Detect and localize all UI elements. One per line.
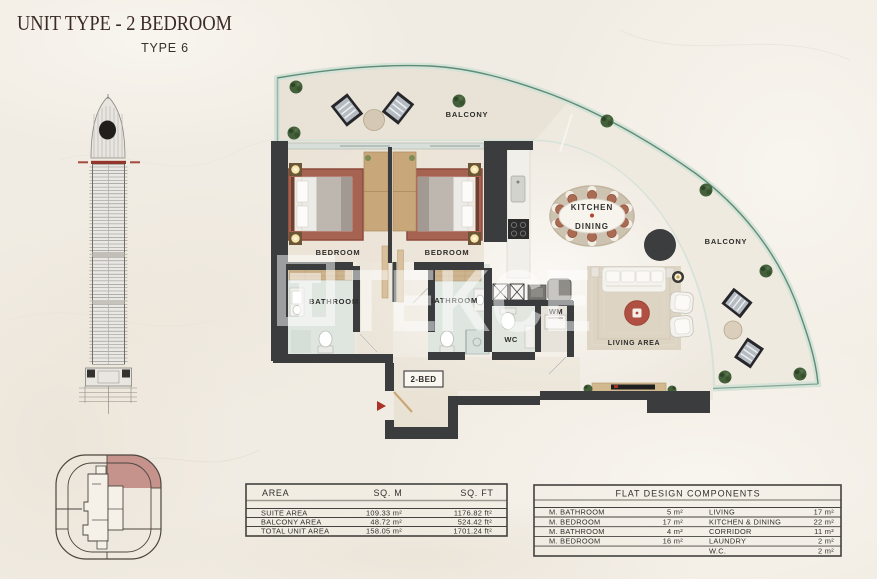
svg-text:2-BED: 2-BED xyxy=(410,375,436,384)
svg-text:TOTAL UNIT AREA: TOTAL UNIT AREA xyxy=(261,527,329,536)
svg-text:2 m²: 2 m² xyxy=(818,537,834,546)
svg-text:1701.24 ft²: 1701.24 ft² xyxy=(453,527,492,536)
svg-text:M. BATHROOM: M. BATHROOM xyxy=(549,527,605,536)
svg-text:W.C.: W.C. xyxy=(709,546,726,555)
svg-text:TEKCE: TEKCE xyxy=(344,251,592,350)
svg-text:17 m²: 17 m² xyxy=(814,508,835,517)
svg-text:2 m²: 2 m² xyxy=(818,546,834,555)
svg-text:LAUNDRY: LAUNDRY xyxy=(709,537,746,546)
svg-text:AREA: AREA xyxy=(262,488,289,498)
svg-text:BALCONY: BALCONY xyxy=(705,237,748,246)
svg-text:SUITE AREA: SUITE AREA xyxy=(261,508,308,517)
svg-text:CORRIDOR: CORRIDOR xyxy=(709,527,752,536)
svg-text:FLAT DESIGN COMPONENTS: FLAT DESIGN COMPONENTS xyxy=(616,489,761,499)
svg-text:158.05 m²: 158.05 m² xyxy=(366,527,402,536)
svg-text:UNIT TYPE - 2 BEDROOM: UNIT TYPE - 2 BEDROOM xyxy=(17,11,232,35)
svg-text:48.72 m²: 48.72 m² xyxy=(370,517,402,526)
svg-text:TYPE 6: TYPE 6 xyxy=(141,41,189,55)
svg-text:4 m²: 4 m² xyxy=(667,527,683,536)
svg-text:BALCONY: BALCONY xyxy=(446,110,489,119)
svg-text:5 m²: 5 m² xyxy=(667,508,683,517)
svg-text:16 m²: 16 m² xyxy=(663,537,684,546)
svg-text:LIVING: LIVING xyxy=(709,508,735,517)
svg-text:109.33 m²: 109.33 m² xyxy=(366,508,402,517)
svg-text:M. BEDROOM: M. BEDROOM xyxy=(549,517,600,526)
svg-text:11 m²: 11 m² xyxy=(814,527,834,536)
svg-text:BALCONY AREA: BALCONY AREA xyxy=(261,517,322,526)
svg-text:KITCHEN: KITCHEN xyxy=(571,203,614,212)
svg-text:17 m²: 17 m² xyxy=(663,517,684,526)
svg-text:M. BATHROOM: M. BATHROOM xyxy=(549,508,605,517)
svg-text:22 m²: 22 m² xyxy=(814,517,835,526)
svg-text:SQ. M: SQ. M xyxy=(373,488,402,498)
svg-text:LIVING AREA: LIVING AREA xyxy=(608,340,661,347)
svg-text:DINING: DINING xyxy=(575,222,609,231)
svg-text:M. BEDROOM: M. BEDROOM xyxy=(549,537,600,546)
svg-text:SQ. FT: SQ. FT xyxy=(460,488,493,498)
svg-text:KITCHEN & DINING: KITCHEN & DINING xyxy=(709,517,781,526)
svg-text:1176.82 ft²: 1176.82 ft² xyxy=(454,508,492,517)
svg-text:524.42 ft²: 524.42 ft² xyxy=(458,517,492,526)
